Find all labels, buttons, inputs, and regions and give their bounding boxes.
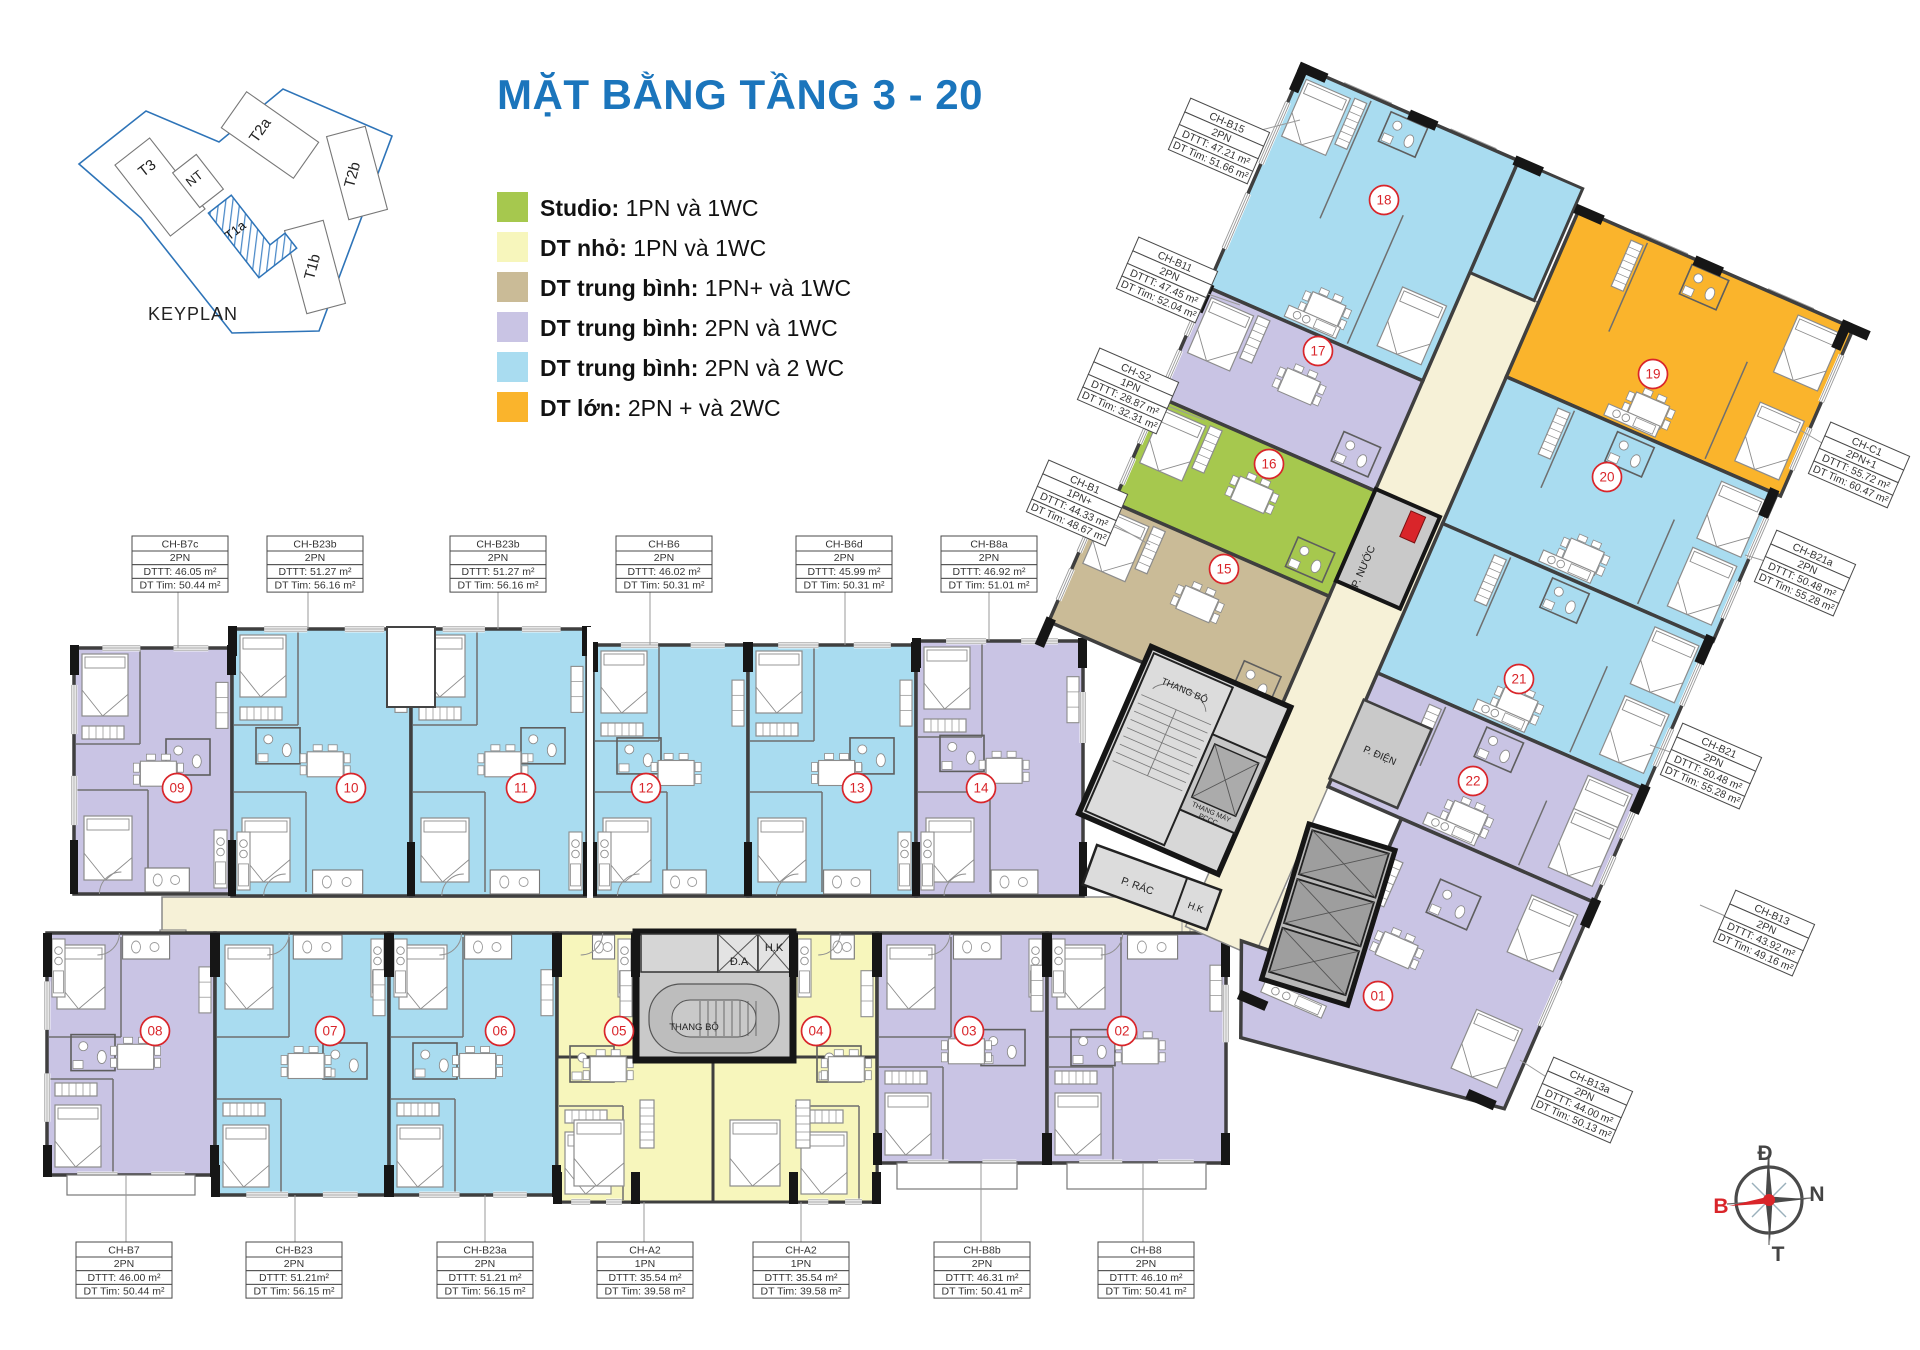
svg-text:N: N — [1809, 1183, 1824, 1206]
svg-text:DTTT: 45.99 m²: DTTT: 45.99 m² — [808, 566, 881, 578]
svg-text:DT Tim: 39.58 m²: DT Tim: 39.58 m² — [761, 1286, 842, 1298]
svg-text:22: 22 — [1465, 774, 1480, 789]
svg-text:DT trung bình: 2PN và 2 WC: DT trung bình: 2PN và 2 WC — [540, 355, 844, 381]
svg-text:CH-B8: CH-B8 — [1130, 1245, 1162, 1257]
svg-text:B: B — [1713, 1195, 1728, 1218]
svg-text:2PN: 2PN — [488, 552, 508, 564]
svg-text:Studio: 1PN và 1WC: Studio: 1PN và 1WC — [540, 195, 759, 221]
svg-text:2PN: 2PN — [170, 552, 190, 564]
svg-text:DTTT: 46.31 m²: DTTT: 46.31 m² — [946, 1272, 1019, 1284]
svg-text:2PN: 2PN — [979, 552, 999, 564]
svg-text:H.K: H.K — [765, 942, 784, 954]
svg-text:CH-B6: CH-B6 — [648, 539, 680, 551]
svg-text:18: 18 — [1376, 193, 1391, 208]
svg-text:16: 16 — [1261, 457, 1276, 472]
svg-text:DT Tim: 50.41 m²: DT Tim: 50.41 m² — [942, 1286, 1023, 1298]
svg-text:05: 05 — [611, 1024, 626, 1039]
svg-text:2PN: 2PN — [114, 1258, 134, 1270]
svg-text:2PN: 2PN — [475, 1258, 495, 1270]
svg-text:CH-B7: CH-B7 — [108, 1245, 140, 1257]
svg-text:DTTT: 46.02 m²: DTTT: 46.02 m² — [628, 566, 701, 578]
svg-text:DT Tim: 39.58 m²: DT Tim: 39.58 m² — [605, 1286, 686, 1298]
svg-text:DT Tim: 56.15 m²: DT Tim: 56.15 m² — [445, 1286, 526, 1298]
svg-text:DTTT: 46.05 m²: DTTT: 46.05 m² — [144, 566, 217, 578]
svg-text:20: 20 — [1599, 470, 1614, 485]
svg-text:2PN: 2PN — [284, 1258, 304, 1270]
svg-text:2PN: 2PN — [654, 552, 674, 564]
svg-text:10: 10 — [343, 781, 358, 796]
svg-text:CH-A2: CH-A2 — [629, 1245, 661, 1257]
svg-text:THANG BỘ: THANG BỘ — [669, 1022, 719, 1033]
svg-text:04: 04 — [808, 1024, 824, 1039]
svg-text:01: 01 — [1370, 989, 1385, 1004]
svg-text:11: 11 — [514, 781, 528, 796]
svg-text:CH-B8b: CH-B8b — [963, 1245, 1001, 1257]
svg-text:KEYPLAN: KEYPLAN — [148, 304, 238, 324]
svg-text:DT Tim: 56.16 m²: DT Tim: 56.16 m² — [275, 580, 356, 592]
svg-text:2PN: 2PN — [1136, 1258, 1156, 1270]
svg-text:CH-B23b: CH-B23b — [293, 539, 336, 551]
svg-text:09: 09 — [169, 781, 184, 796]
svg-text:DT Tim: 56.15 m²: DT Tim: 56.15 m² — [254, 1286, 335, 1298]
svg-text:03: 03 — [961, 1024, 976, 1039]
svg-text:DTTT: 46.10 m²: DTTT: 46.10 m² — [1110, 1272, 1183, 1284]
svg-text:DTTT: 46.00 m²: DTTT: 46.00 m² — [88, 1272, 161, 1284]
svg-text:15: 15 — [1216, 562, 1231, 577]
svg-text:08: 08 — [147, 1024, 162, 1039]
svg-text:DT Tim: 50.44 m²: DT Tim: 50.44 m² — [140, 580, 221, 592]
svg-text:DT Tim: 50.31 m²: DT Tim: 50.31 m² — [624, 580, 705, 592]
svg-text:DT Tim: 50.41 m²: DT Tim: 50.41 m² — [1106, 1286, 1187, 1298]
svg-text:DTTT: 35.54 m²: DTTT: 35.54 m² — [765, 1272, 838, 1284]
svg-text:Đ: Đ — [1757, 1142, 1772, 1165]
svg-text:1PN: 1PN — [791, 1258, 811, 1270]
svg-text:21: 21 — [1511, 672, 1526, 687]
svg-text:CH-B23: CH-B23 — [275, 1245, 313, 1257]
svg-text:DT trung bình: 2PN và 1WC: DT trung bình: 2PN và 1WC — [540, 315, 838, 341]
svg-text:06: 06 — [492, 1024, 507, 1039]
svg-text:DT Tim: 51.01 m²: DT Tim: 51.01 m² — [949, 580, 1030, 592]
svg-text:17: 17 — [1310, 344, 1325, 359]
svg-text:DT Tim: 56.16 m²: DT Tim: 56.16 m² — [458, 580, 539, 592]
svg-text:2PN: 2PN — [834, 552, 854, 564]
svg-text:DTTT: 46.92 m²: DTTT: 46.92 m² — [953, 566, 1026, 578]
svg-text:DT lớn: 2PN + và 2WC: DT lớn: 2PN + và 2WC — [540, 395, 781, 421]
svg-text:12: 12 — [638, 781, 653, 796]
svg-text:DTTT: 51.21 m²: DTTT: 51.21 m² — [449, 1272, 522, 1284]
svg-text:Đ.A: Đ.A — [730, 956, 749, 968]
svg-text:DTTT: 35.54 m²: DTTT: 35.54 m² — [609, 1272, 682, 1284]
svg-text:DTTT: 51.21m²: DTTT: 51.21m² — [259, 1272, 330, 1284]
svg-text:2PN: 2PN — [972, 1258, 992, 1270]
svg-text:2PN: 2PN — [305, 552, 325, 564]
svg-text:02: 02 — [1114, 1024, 1129, 1039]
svg-text:CH-B6d: CH-B6d — [825, 539, 863, 551]
svg-text:DT nhỏ: 1PN và 1WC: DT nhỏ: 1PN và 1WC — [540, 235, 766, 261]
svg-text:DT Tim: 50.44 m²: DT Tim: 50.44 m² — [84, 1286, 165, 1298]
svg-text:14: 14 — [973, 781, 989, 796]
svg-text:CH-B23a: CH-B23a — [463, 1245, 506, 1257]
svg-text:19: 19 — [1645, 367, 1660, 382]
svg-text:07: 07 — [322, 1024, 337, 1039]
svg-text:13: 13 — [849, 781, 864, 796]
svg-text:MẶT BẰNG TẦNG 3 - 20: MẶT BẰNG TẦNG 3 - 20 — [497, 71, 983, 118]
svg-text:DTTT: 51.27 m²: DTTT: 51.27 m² — [462, 566, 535, 578]
svg-text:CH-B23b: CH-B23b — [476, 539, 519, 551]
svg-text:DT Tim: 50.31 m²: DT Tim: 50.31 m² — [804, 580, 885, 592]
svg-text:DT trung bình: 1PN+ và 1WC: DT trung bình: 1PN+ và 1WC — [540, 275, 851, 301]
svg-text:CH-B8a: CH-B8a — [970, 539, 1008, 551]
svg-text:CH-B7c: CH-B7c — [162, 539, 199, 551]
svg-text:T: T — [1772, 1243, 1785, 1266]
svg-text:DTTT: 51.27 m²: DTTT: 51.27 m² — [279, 566, 352, 578]
svg-text:1PN: 1PN — [635, 1258, 655, 1270]
svg-text:CH-A2: CH-A2 — [785, 1245, 817, 1257]
